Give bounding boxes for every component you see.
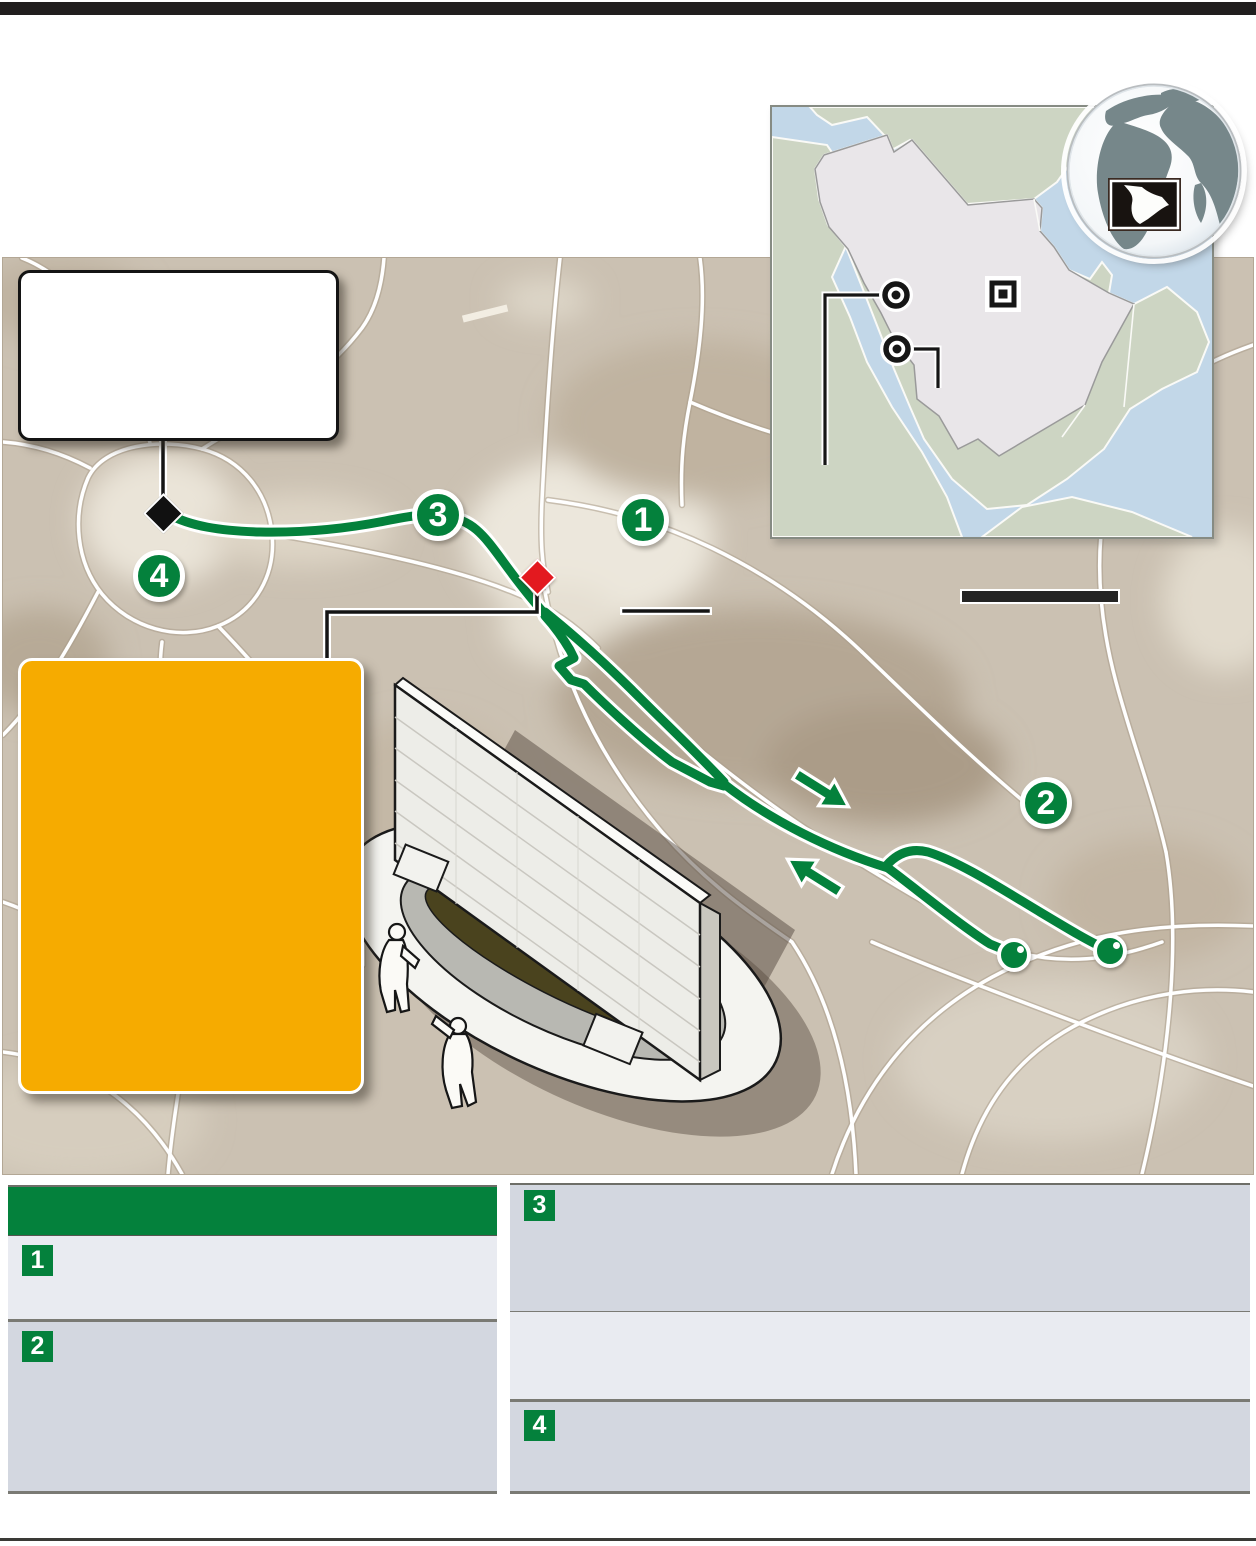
legend-row-2 [8, 1322, 497, 1494]
white-callout-box [18, 270, 339, 441]
legend-badge-2: 2 [22, 1331, 53, 1362]
city-marker-circle [880, 332, 914, 366]
stop-4-number: 4 [150, 559, 169, 593]
legend-header-bar [8, 1185, 497, 1238]
stop-3-number: 3 [429, 498, 448, 532]
legend-badge-3-number: 3 [533, 1193, 547, 1218]
infographic-page: { "map_markers": [ {"label": "1"}, {"lab… [0, 0, 1256, 1546]
city-marker-circle [879, 278, 913, 312]
legend-badge-2-number: 2 [31, 1334, 45, 1359]
stop-2-number: 2 [1037, 786, 1056, 820]
top-rule-bar [0, 2, 1256, 15]
legend-badge-4: 4 [524, 1410, 555, 1441]
route-stop-marker-3: 3 [412, 489, 464, 541]
legend-row-1 [8, 1236, 497, 1322]
legend-badge-4-number: 4 [533, 1413, 547, 1438]
legend-badge-3: 3 [524, 1190, 555, 1221]
stop-1-number: 1 [634, 503, 653, 537]
capital-marker-square [985, 276, 1021, 312]
leader-lines [163, 437, 708, 660]
legend-row-3 [510, 1183, 1250, 1314]
map-scale-bar [960, 589, 1120, 604]
route-endpoint-dot [997, 938, 1031, 972]
bottom-rule [0, 1538, 1256, 1541]
legend-row-continuation [510, 1312, 1250, 1402]
route-stop-marker-4: 4 [133, 550, 185, 602]
route-stop-marker-2: 2 [1020, 777, 1072, 829]
legend-badge-1: 1 [22, 1245, 53, 1276]
jamarat-bridge-illustration [330, 660, 800, 1160]
legend-row-4 [510, 1402, 1250, 1494]
route-endpoint-dot [1093, 934, 1127, 968]
globe-highlight-rect [1109, 179, 1180, 230]
legend-badge-1-number: 1 [31, 1248, 45, 1273]
route-stop-marker-1: 1 [617, 494, 669, 546]
orange-callout-box [18, 658, 364, 1094]
globe-locator [1066, 83, 1242, 259]
